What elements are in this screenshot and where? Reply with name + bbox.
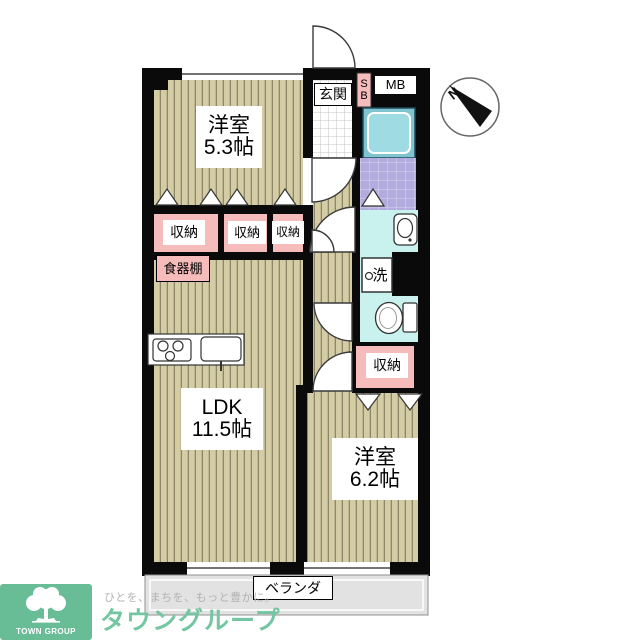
compass-icon: N [441, 78, 499, 136]
cupboard-label: 食器棚 [156, 255, 210, 282]
storage-label-3: 収納 [272, 221, 304, 244]
window-top [182, 68, 303, 80]
room1-name: 洋室 [208, 115, 250, 137]
ldk-name: LDK [202, 397, 243, 419]
meter-box-label: MB [375, 76, 416, 94]
window-bottom-right [304, 562, 390, 575]
ldk-label: LDK 11.5帖 [181, 388, 263, 450]
storage-label-4: 収納 [366, 353, 408, 378]
washbasin-icon [394, 214, 417, 245]
entrance-door-arc [313, 26, 355, 68]
storage-label-2: 収納 [228, 221, 266, 244]
storage-label-1: 収納 [163, 220, 205, 245]
shoe-box-label: S B [357, 74, 371, 107]
kitchen-counter [148, 334, 244, 371]
laundry-label: 洗 [370, 263, 390, 288]
company-name: タウングループ [100, 601, 281, 637]
bath-tile-floor [360, 158, 416, 210]
window-bottom-left [187, 562, 270, 575]
room1-size: 5.3帖 [204, 137, 254, 159]
room2-name: 洋室 [354, 447, 396, 469]
ldk-size: 11.5帖 [192, 419, 252, 441]
tree-icon [0, 584, 92, 628]
logo-text: TOWN GROUP [0, 627, 92, 636]
town-group-logo: TOWN GROUP [0, 584, 92, 640]
bathtub [363, 108, 415, 158]
room2-size: 6.2帖 [350, 469, 400, 491]
room1-label: 洋室 5.3帖 [196, 106, 262, 168]
toilet-icon [376, 303, 418, 334]
room2-label: 洋室 6.2帖 [332, 438, 418, 500]
entrance-label: 玄関 [314, 83, 352, 106]
floorplan-page: N 洋室 5.3帖 玄関 S B MB 収納 収納 収納 食器棚 洗 収納 LD… [0, 0, 640, 640]
shaft-block [392, 252, 418, 296]
